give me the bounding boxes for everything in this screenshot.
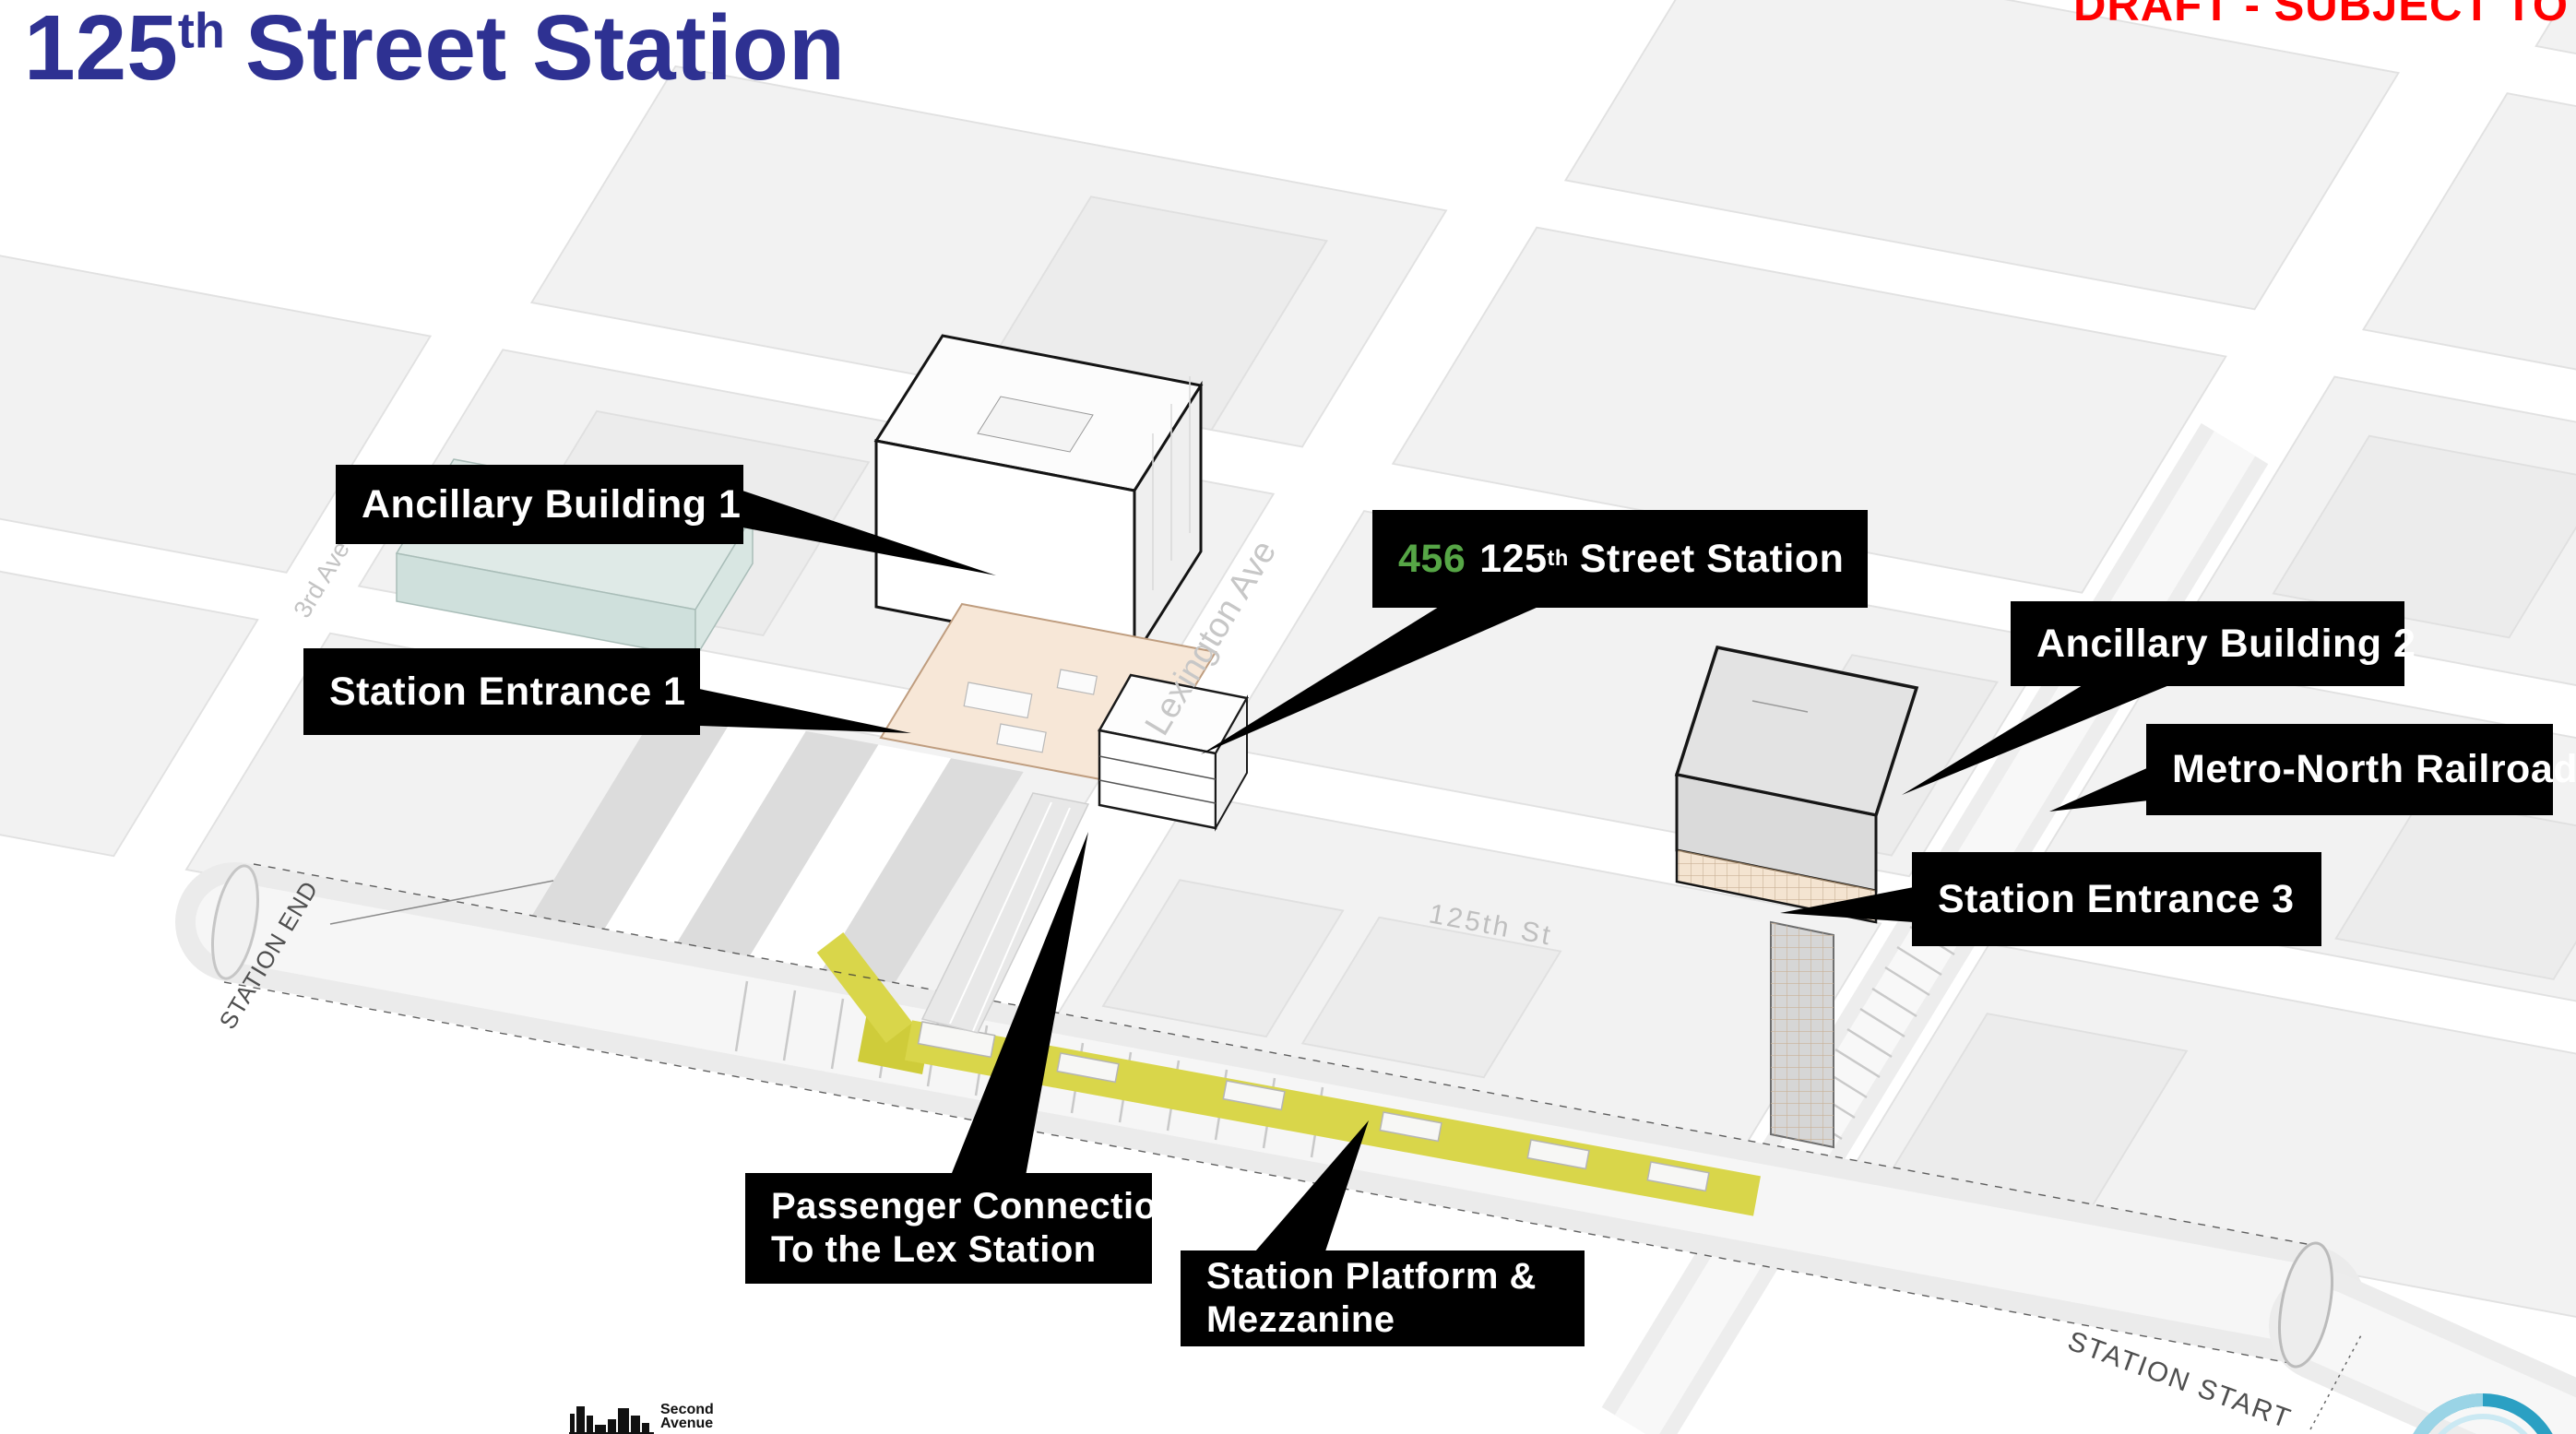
callout-label-line1: Station Platform & <box>1206 1255 1537 1298</box>
ancillary-building-1-shape <box>876 336 1201 657</box>
callout-label-line2: To the Lex Station <box>771 1228 1097 1272</box>
callout-station-entrance-1: Station Entrance 1 <box>303 648 700 735</box>
callout-label: Station Entrance 3 <box>1938 877 2295 922</box>
logo-text-line1: Second <box>660 1403 714 1416</box>
callout-label: Station Entrance 1 <box>329 670 686 715</box>
station-entrance-3-shaft <box>1771 922 1834 1147</box>
subway-456-badge: 456 <box>1398 537 1466 582</box>
title-rest: Street Station <box>245 0 845 100</box>
callout-label-line1: Passenger Connection <box>771 1185 1180 1228</box>
second-avenue-subway-logo: Second Avenue <box>569 1403 714 1434</box>
title-ordinal: th <box>178 4 225 59</box>
callout-ancillary-building-1: Ancillary Building 1 <box>336 465 743 544</box>
logo-text-line2: Avenue <box>660 1416 714 1430</box>
page-title: 125thStreet Station <box>24 0 845 106</box>
callout-ancillary-building-2: Ancillary Building 2 <box>2011 601 2404 686</box>
logo-text: Second Avenue <box>660 1403 714 1430</box>
callout-metro-north-railroad: Metro-North Railroad <box>2146 724 2553 815</box>
callout-456-street-station: 456125thStreet Station <box>1372 510 1868 608</box>
callout-label: Metro-North Railroad <box>2172 747 2576 792</box>
callout-ordinal: th <box>1548 547 1569 572</box>
skyline-icon <box>569 1403 654 1434</box>
callout-label: Ancillary Building 1 <box>362 482 741 527</box>
slide: 3rd Ave Lexington Ave 125th St STATION E… <box>0 0 2576 1434</box>
callout-station-entrance-3: Station Entrance 3 <box>1912 852 2321 946</box>
title-number: 125 <box>24 0 178 100</box>
callout-label: 125 <box>1479 537 1547 582</box>
callout-label: Ancillary Building 2 <box>2036 622 2416 667</box>
callout-platform-mezzanine: Station Platform & Mezzanine <box>1181 1250 1585 1346</box>
callout-passenger-connection: Passenger Connection To the Lex Station <box>745 1173 1152 1284</box>
draft-watermark: DRAFT - SUBJECT TO CH <box>2073 0 2576 31</box>
callout-label-rest: Street Station <box>1580 537 1845 582</box>
wedge-entrance-1 <box>699 689 911 733</box>
callout-label-line2: Mezzanine <box>1206 1298 1395 1342</box>
